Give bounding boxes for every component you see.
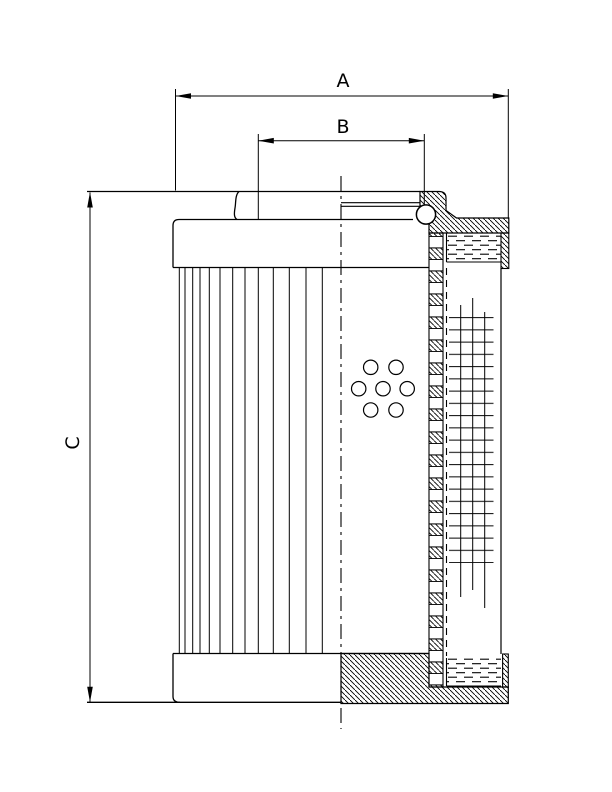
dim-b-label: B: [336, 116, 349, 138]
upper-media-pocket: [447, 233, 509, 269]
arrowhead-left-icon: [258, 138, 274, 144]
dim-c-label: C: [62, 436, 84, 449]
arrowhead-down-icon: [87, 687, 93, 703]
outer-shell-collar-bottom: [503, 654, 509, 687]
arrowhead-right-icon: [493, 93, 509, 99]
outer-shell-collar-top: [501, 233, 509, 269]
arrowhead-left-icon: [176, 93, 192, 99]
dimension-a: A: [176, 70, 509, 218]
dimension-b: B: [258, 116, 424, 220]
arrowhead-up-icon: [87, 192, 93, 208]
perforation-holes: [352, 360, 415, 417]
bottom-end-cap: [87, 654, 508, 704]
support-mesh: [449, 298, 494, 608]
pleats: [179, 268, 322, 654]
arrowhead-right-icon: [409, 138, 425, 144]
drawing-page: A B C: [0, 0, 612, 792]
dimension-c: C: [62, 192, 93, 702]
o-ring-seal: [416, 205, 435, 224]
cap-rim-flange-section: [416, 192, 508, 234]
dim-a-label: A: [337, 70, 350, 92]
filter-element-drawing: A B C: [0, 0, 612, 792]
lower-media-pocket: [447, 654, 509, 687]
core-tube-section: [429, 233, 447, 687]
